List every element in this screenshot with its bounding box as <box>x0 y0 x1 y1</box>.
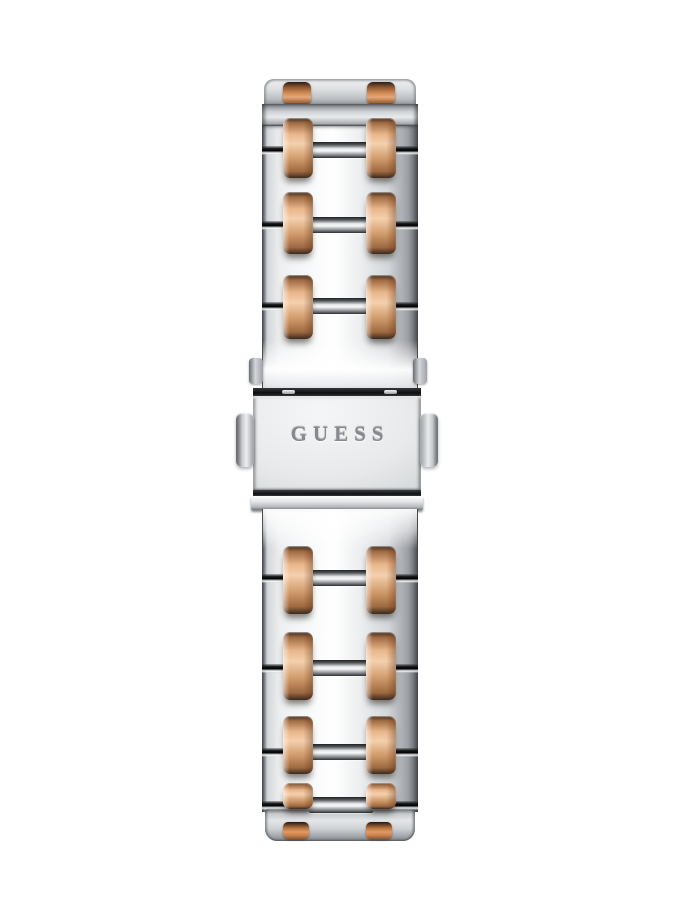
rose-gold-bar-right <box>366 783 396 809</box>
clasp-plate: GUESS <box>253 396 421 491</box>
rose-gold-bar-right <box>366 632 396 700</box>
hinge-pin-highlight-left <box>282 390 295 394</box>
rose-gold-bar-left <box>283 716 313 774</box>
top-cap-stub-left <box>283 82 311 105</box>
rose-gold-bar-left <box>283 275 313 339</box>
clasp-hinge-lug-left <box>249 358 263 384</box>
rose-gold-bar-right <box>366 716 396 774</box>
rose-gold-bar-right <box>366 546 396 614</box>
watch-band: GUESS <box>0 0 676 922</box>
rose-gold-bar-left <box>283 546 313 614</box>
rose-gold-bar-left <box>283 118 313 178</box>
end-cap-stub-left <box>283 822 309 839</box>
clasp-push-button-right <box>420 413 438 467</box>
hinge-slot <box>308 298 374 314</box>
clasp-push-button-left <box>236 413 254 467</box>
hinge-slot <box>308 142 374 158</box>
hinge-slot <box>308 660 374 676</box>
top-cap-stub-right <box>367 82 395 105</box>
rose-gold-bar-left <box>283 783 313 809</box>
rose-gold-bar-right <box>366 192 396 254</box>
hinge-slot <box>308 217 374 233</box>
clasp-brand-engraving: GUESS <box>253 422 421 446</box>
end-cap-stub-right <box>366 822 392 839</box>
rose-gold-bar-right <box>366 275 396 339</box>
hinge-slot <box>308 744 374 760</box>
hinge-slot <box>308 570 374 586</box>
clasp-hinge-lug-right <box>413 358 427 384</box>
hinge-pin-highlight-right <box>384 390 397 394</box>
rose-gold-bar-left <box>283 192 313 254</box>
product-photo: GUESS <box>0 0 676 922</box>
rose-gold-bar-right <box>366 118 396 178</box>
hinge-slot <box>308 797 374 813</box>
clasp-bottom-fold <box>251 496 423 510</box>
rose-gold-bar-left <box>283 632 313 700</box>
